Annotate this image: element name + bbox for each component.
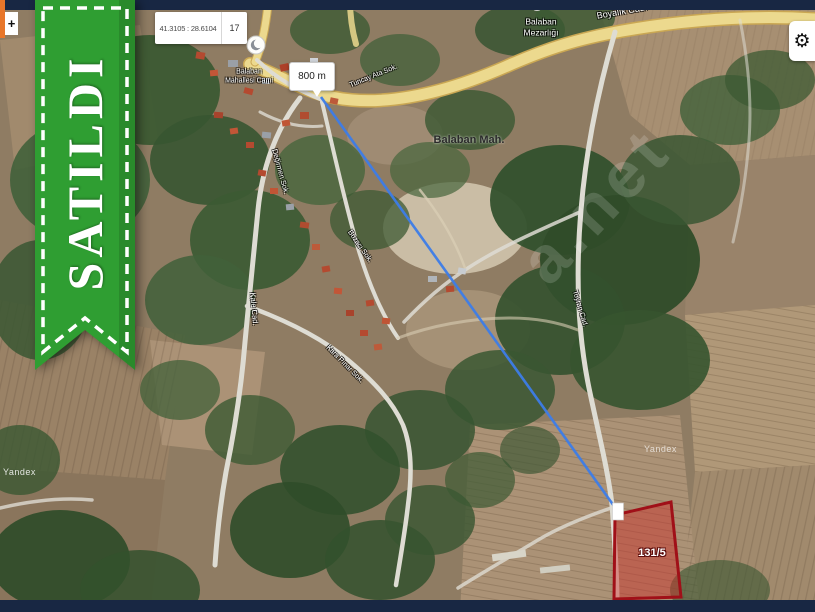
yandex-watermark-left: Yandex: [3, 467, 36, 477]
sold-ribbon-label: SATILDI: [56, 54, 114, 291]
plus-icon: +: [8, 16, 16, 31]
coordinates-value: 41.3105 : 28.6104: [155, 12, 221, 44]
district-label: Balaban Mah.: [434, 134, 505, 148]
sold-ribbon: SATILDI: [33, 0, 137, 392]
parcel-marker: [613, 503, 624, 520]
yandex-watermark-right: Yandex: [644, 444, 677, 454]
bottom-bar: [0, 600, 815, 612]
map-screen: BalabanMahallesi Cami BalabanMezarlığı B…: [0, 0, 815, 612]
cemetery-label: BalabanMezarlığı: [524, 16, 559, 37]
zoom-level-value: 17: [221, 12, 247, 44]
parcel-number-label: 131/5: [638, 547, 666, 559]
distance-bubble: 800 m: [289, 62, 335, 91]
mosque-label: BalabanMahallesi Cami: [225, 68, 273, 86]
distance-label: 800 m: [298, 71, 326, 82]
coordinates-box: 41.3105 : 28.6104 17: [155, 12, 247, 44]
mosque-icon: [247, 36, 265, 54]
zoom-in-button[interactable]: +: [5, 12, 18, 35]
settings-button[interactable]: ⚙: [789, 21, 815, 61]
gear-icon: ⚙: [793, 32, 810, 51]
